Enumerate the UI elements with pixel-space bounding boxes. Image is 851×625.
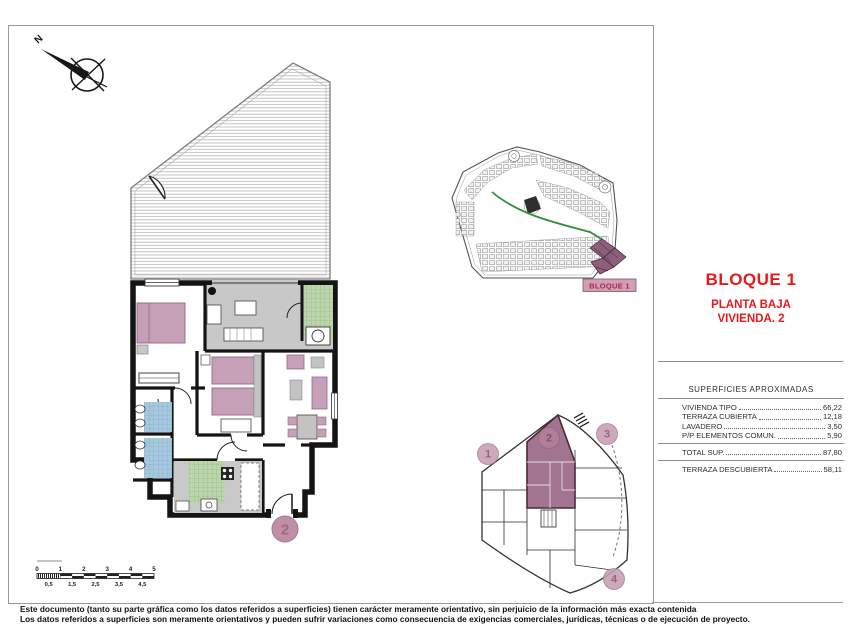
- site-block-label-text: BLOQUE 1: [589, 282, 630, 291]
- unit-number-badge: 2: [272, 516, 298, 542]
- table-row: P/P ELEMENTOS COMUN. 5,90: [658, 431, 844, 441]
- row-value: 87,80: [823, 448, 842, 457]
- footer-rule: [652, 602, 843, 603]
- roundabout-2: [599, 181, 611, 193]
- svg-text:2,5: 2,5: [91, 582, 100, 588]
- table-rule: [658, 460, 844, 461]
- dot-leader: [774, 471, 821, 472]
- svg-text:2: 2: [82, 566, 86, 573]
- dot-leader: [739, 409, 821, 410]
- dot-leader: [759, 419, 821, 420]
- surfaces-table-header: SUPERFICIES APROXIMADAS: [658, 385, 844, 394]
- sink: [201, 499, 217, 511]
- site-block-label: BLOQUE 1: [583, 279, 636, 292]
- uncovered-terrace: [131, 63, 330, 279]
- row-label: P/P ELEMENTOS COMUN.: [682, 431, 776, 440]
- table-rule: [658, 443, 844, 444]
- unit-4-text: 4: [611, 574, 618, 586]
- row-label: TERRAZA CUBIERTA: [682, 412, 757, 421]
- unit-1-text: 1: [485, 449, 491, 461]
- disclaimer-line-1: Este documento (tanto su parte gráfica c…: [20, 604, 840, 614]
- column: [208, 287, 216, 295]
- plan-sheet: N: [0, 0, 851, 625]
- row-value: 5,90: [827, 431, 842, 440]
- roundabout: [509, 151, 520, 162]
- compass-icon: N: [25, 28, 120, 113]
- title-divider: [658, 361, 843, 362]
- covered-terrace: [205, 285, 333, 351]
- dot-leader: [778, 438, 825, 439]
- svg-text:0,5: 0,5: [45, 582, 54, 588]
- kitchen: [174, 461, 262, 513]
- svg-text:4,5: 4,5: [138, 582, 147, 588]
- dot-leader: [726, 454, 821, 455]
- scale-minor-labels: 0,5 1,5 2,5 3,5 4,5: [45, 582, 147, 588]
- svg-text:1,5: 1,5: [68, 582, 77, 588]
- svg-text:0: 0: [35, 566, 39, 573]
- stove: [221, 467, 234, 480]
- row-label: TERRAZA DESCUBIERTA: [682, 465, 772, 474]
- unit-3-text: 3: [604, 429, 610, 441]
- floor-plan: 2: [113, 55, 348, 545]
- scale-bar-blocks: [37, 574, 154, 579]
- dining-table: [297, 415, 317, 439]
- row-label: TOTAL SUP.: [682, 448, 724, 457]
- key-plan: 1 2 3 4: [462, 390, 652, 600]
- scale-bar: 0 1 2 3 4 5 0,5 1,5 2,5 3,5 4,5: [30, 554, 160, 592]
- site-plan: BLOQUE 1: [440, 140, 645, 300]
- unit-1-badge: 1: [478, 444, 499, 465]
- unit-4-badge: 4: [604, 569, 625, 590]
- row-value: 3,50: [827, 422, 842, 431]
- unit-label: VIVIENDA. 2: [655, 313, 847, 325]
- row-value: 12,18: [823, 412, 842, 421]
- svg-text:5: 5: [152, 566, 156, 573]
- row-label: VIVIENDA TIPO: [682, 403, 737, 412]
- compass-north-label: N: [33, 33, 46, 46]
- svg-text:3: 3: [105, 566, 109, 573]
- row-value: 66,22: [823, 403, 842, 412]
- table-row: LAVADERO 3,50: [658, 421, 844, 431]
- title-block: BLOQUE 1 PLANTA BAJA VIVIENDA. 2: [655, 270, 847, 325]
- floor-label: PLANTA BAJA: [655, 299, 847, 311]
- unit-2-text: 2: [546, 433, 552, 445]
- disclaimer-line-2: Los datos referidos a superficies son me…: [20, 614, 840, 624]
- svg-text:4: 4: [129, 566, 133, 573]
- block-title: BLOQUE 1: [655, 270, 847, 290]
- table-uncovered-row: TERRAZA DESCUBIERTA 58,11: [658, 464, 844, 474]
- unit-number-text: 2: [281, 522, 289, 539]
- surfaces-table: SUPERFICIES APROXIMADAS VIVIENDA TIPO 66…: [658, 385, 844, 474]
- unit-2-badge: 2: [539, 428, 560, 449]
- table-row: VIVIENDA TIPO 66,22: [658, 402, 844, 412]
- unit-3-badge: 3: [597, 424, 618, 445]
- table-row: TERRAZA CUBIERTA 12,18: [658, 412, 844, 422]
- svg-text:3,5: 3,5: [115, 582, 124, 588]
- scale-major-labels: 0 1 2 3 4 5: [35, 566, 156, 573]
- row-value: 58,11: [824, 465, 842, 474]
- svg-text:1: 1: [59, 566, 63, 573]
- table-rule: [658, 398, 844, 399]
- row-label: LAVADERO: [682, 422, 722, 431]
- dot-leader: [724, 428, 825, 429]
- table-total-row: TOTAL SUP. 87,80: [658, 447, 844, 457]
